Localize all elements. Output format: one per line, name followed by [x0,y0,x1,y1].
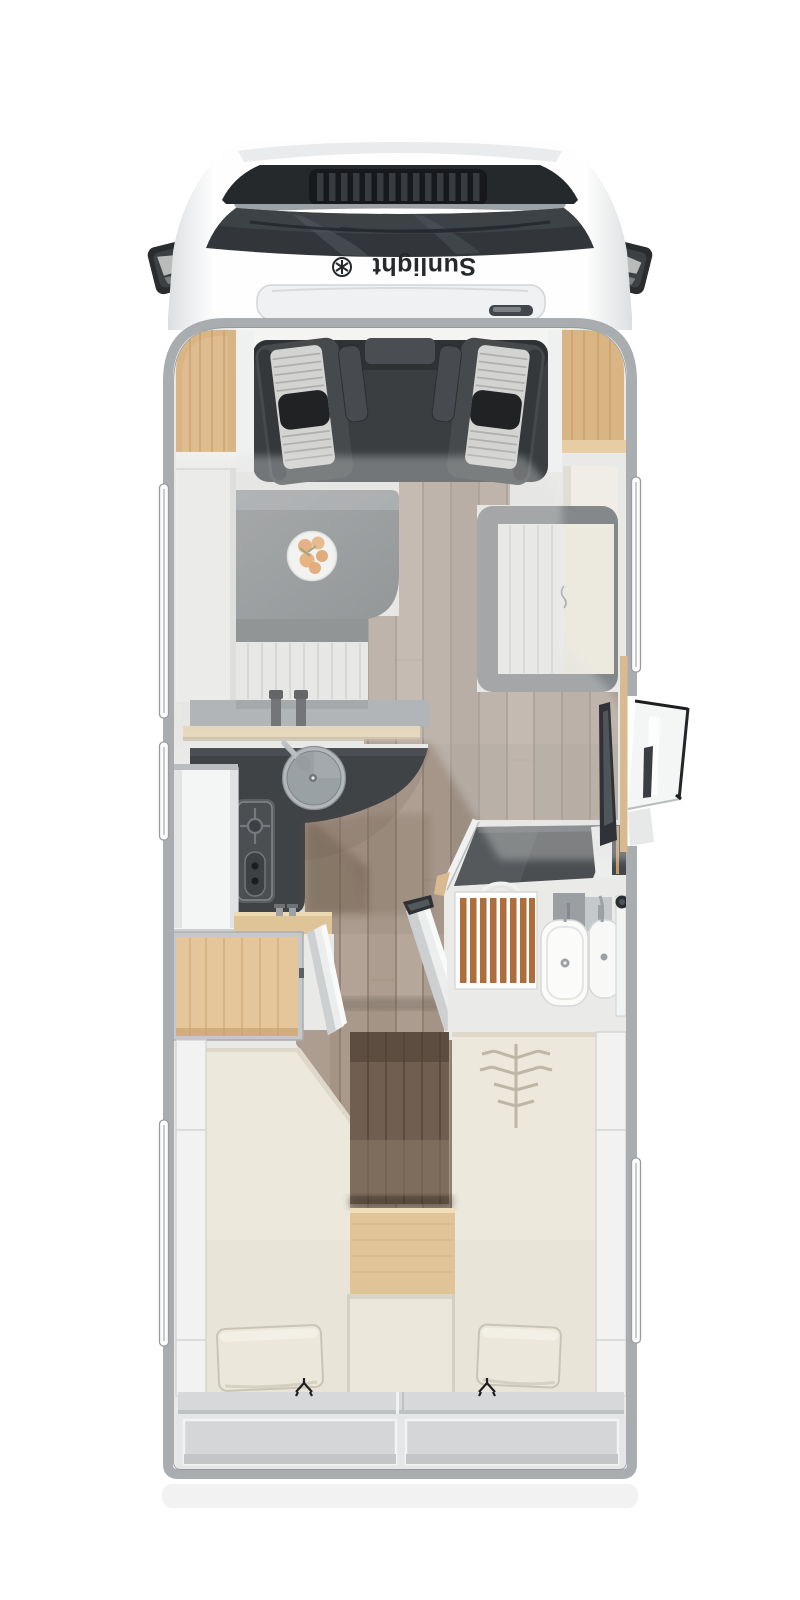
svg-text:Sunlight: Sunlight [372,252,476,280]
